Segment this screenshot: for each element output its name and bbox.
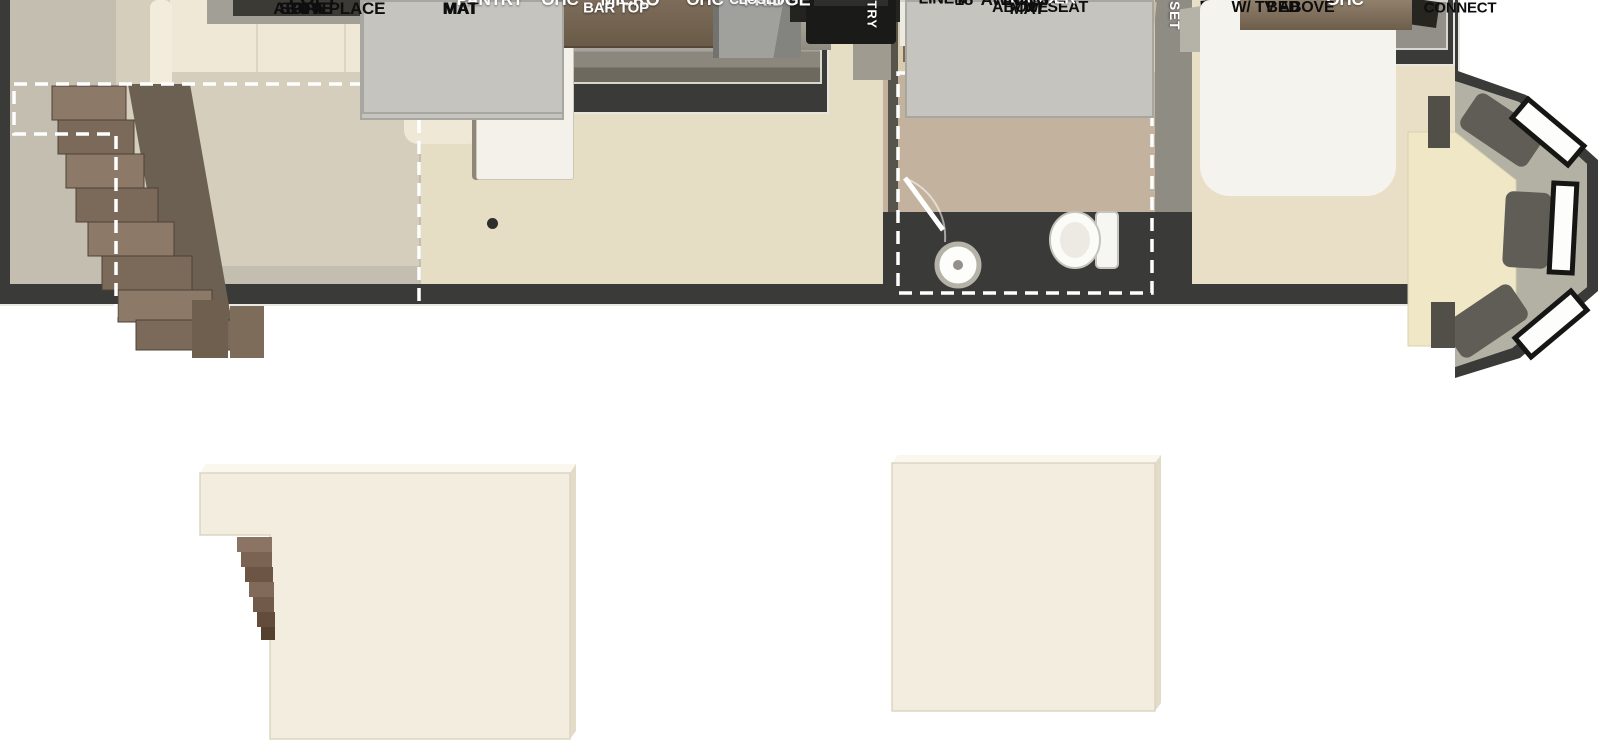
entry-steps [806,0,896,44]
loft-left-label: LOFT [289,0,338,10]
loft-diagram-left-base [200,464,576,739]
loft-diagram-right-base [892,455,1161,711]
cap-window [1511,287,1590,360]
rv-floorplan-diagram: PANTRY OHC MICRO OHC FRIDGE SECTIONAL SO… [0,0,1600,754]
ohc-left-label: OHC [541,0,578,9]
flip-down-bar-label: FLIP-DOWN BAR TOP [574,0,657,16]
pantry-vertical-label: PANTRY [866,0,879,29]
bunk-mat-left-bottom-label: BUNK MAT [437,0,485,18]
nightstand [1431,302,1455,348]
cap-window [1508,95,1587,168]
bench-cushion [1502,191,1552,269]
sofa-arm [150,0,172,98]
lp-quick-connect-label: LP QUICK CONNECT [1424,0,1497,16]
loft-right-label: LOFT [1003,0,1052,10]
dresser-label: DRESSER W/ TV ABOVE [1232,0,1335,17]
faucet [487,218,498,229]
bedroom-closet-label: CLOSET [1167,0,1181,30]
bench-cushion [1457,90,1547,170]
kitchen-closet-label: CLOSET [729,0,783,7]
ohc-right-label: OHC [686,0,723,9]
cap-window [1547,180,1580,275]
